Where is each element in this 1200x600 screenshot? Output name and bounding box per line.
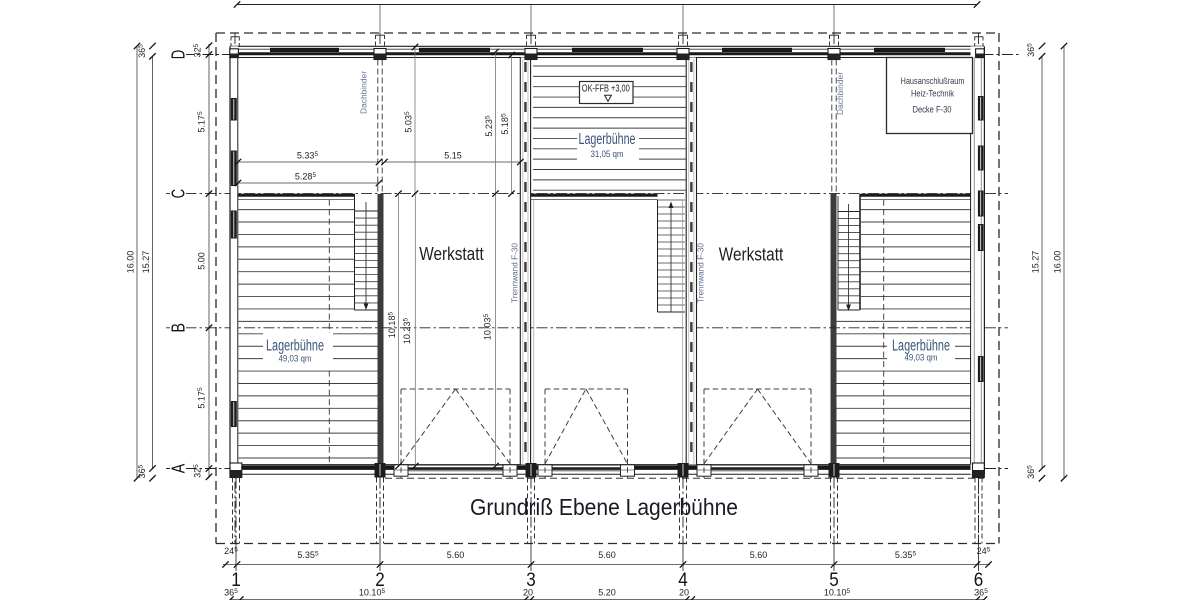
svg-text:Dachbinder: Dachbinder [360,71,369,114]
svg-text:15.27: 15.27 [141,251,151,274]
svg-text:Dachbinder: Dachbinder [836,72,845,115]
svg-text:Trennwand F-30: Trennwand F-30 [511,242,520,303]
svg-text:49,03 qm: 49,03 qm [279,354,312,364]
svg-text:OK-FFB +3,00: OK-FFB +3,00 [582,84,630,95]
svg-text:Werkstatt: Werkstatt [419,243,484,264]
svg-text:C: C [169,189,189,199]
svg-text:Lagerbühne: Lagerbühne [579,131,636,148]
svg-text:16.00: 16.00 [1053,251,1063,274]
svg-text:Werkstatt: Werkstatt [719,244,784,265]
svg-text:Lagerbühne: Lagerbühne [266,338,324,355]
svg-text:20: 20 [523,588,533,598]
svg-text:Grundriß Ebene Lagerbühne: Grundriß Ebene Lagerbühne [470,494,738,520]
svg-text:Heiz-Technik: Heiz-Technik [911,89,954,99]
svg-text:Decke F-30: Decke F-30 [913,105,952,115]
svg-text:D: D [169,50,189,60]
svg-text:Trennwand F-30: Trennwand F-30 [697,242,706,303]
svg-text:5.60: 5.60 [750,550,768,560]
svg-text:Hausanschlußraum: Hausanschlußraum [901,76,965,86]
svg-text:5.60: 5.60 [447,550,465,560]
svg-text:49,03 qm: 49,03 qm [905,353,938,363]
svg-text:5.60: 5.60 [598,550,616,560]
svg-text:16.00: 16.00 [126,251,136,274]
svg-text:A: A [169,464,189,474]
svg-text:B: B [169,323,189,333]
svg-text:5.20: 5.20 [598,588,616,598]
svg-text:31,05 qm: 31,05 qm [591,149,624,159]
svg-text:5.00: 5.00 [197,252,207,270]
svg-text:5.15: 5.15 [444,151,462,161]
svg-text:20: 20 [679,588,689,598]
svg-text:15.27: 15.27 [1031,251,1041,274]
